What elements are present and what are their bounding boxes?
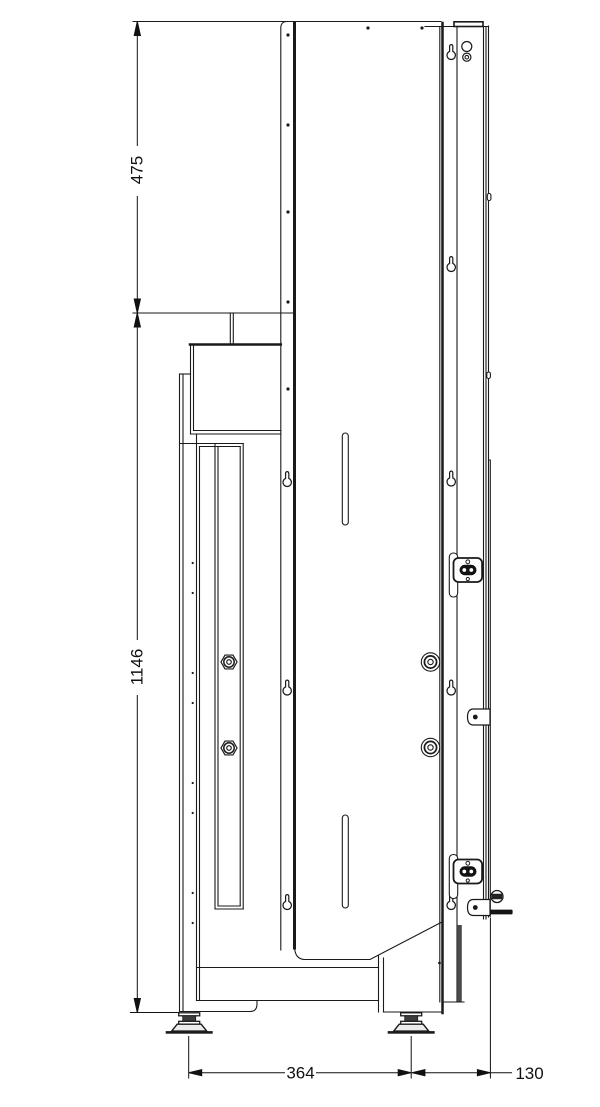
hopper-box xyxy=(190,345,281,435)
dim-label-364: 364 xyxy=(286,1064,314,1083)
duct-panel xyxy=(215,444,243,910)
screw-hole-dots xyxy=(192,26,424,924)
dimension-475: 475 xyxy=(128,22,147,314)
front-door-panel xyxy=(180,374,244,1012)
dimension-364: 364 xyxy=(189,1036,412,1083)
top-screw-and-washer xyxy=(462,42,472,62)
column-foot-shadow xyxy=(458,925,462,1002)
base-assembly xyxy=(180,923,442,1013)
top-lip xyxy=(454,22,483,27)
hinge-tabs xyxy=(468,709,491,916)
dim-label-1146: 1146 xyxy=(128,649,147,686)
latch-pin xyxy=(490,910,513,915)
mounting-brackets xyxy=(449,553,482,899)
rear-bump xyxy=(487,194,491,201)
dim-label-130: 130 xyxy=(515,1064,543,1083)
dimension-1146: 1146 xyxy=(128,313,180,1013)
latch-knob xyxy=(490,891,513,915)
cabinet-side-elevation: 475 1146 364 130 xyxy=(0,0,600,1107)
rear-bottom-chamfer xyxy=(295,923,442,960)
drawing-sheet: 475 1146 364 130 xyxy=(0,0,600,1107)
leveling-feet xyxy=(166,1013,435,1034)
vent-slots xyxy=(342,433,348,908)
hex-nuts xyxy=(221,655,237,755)
dimension-130: 130 xyxy=(412,918,544,1083)
wall-mount-keyholes xyxy=(283,45,455,910)
dim-label-475: 475 xyxy=(128,156,147,184)
grommets xyxy=(421,653,439,757)
rear-bump xyxy=(487,372,491,379)
